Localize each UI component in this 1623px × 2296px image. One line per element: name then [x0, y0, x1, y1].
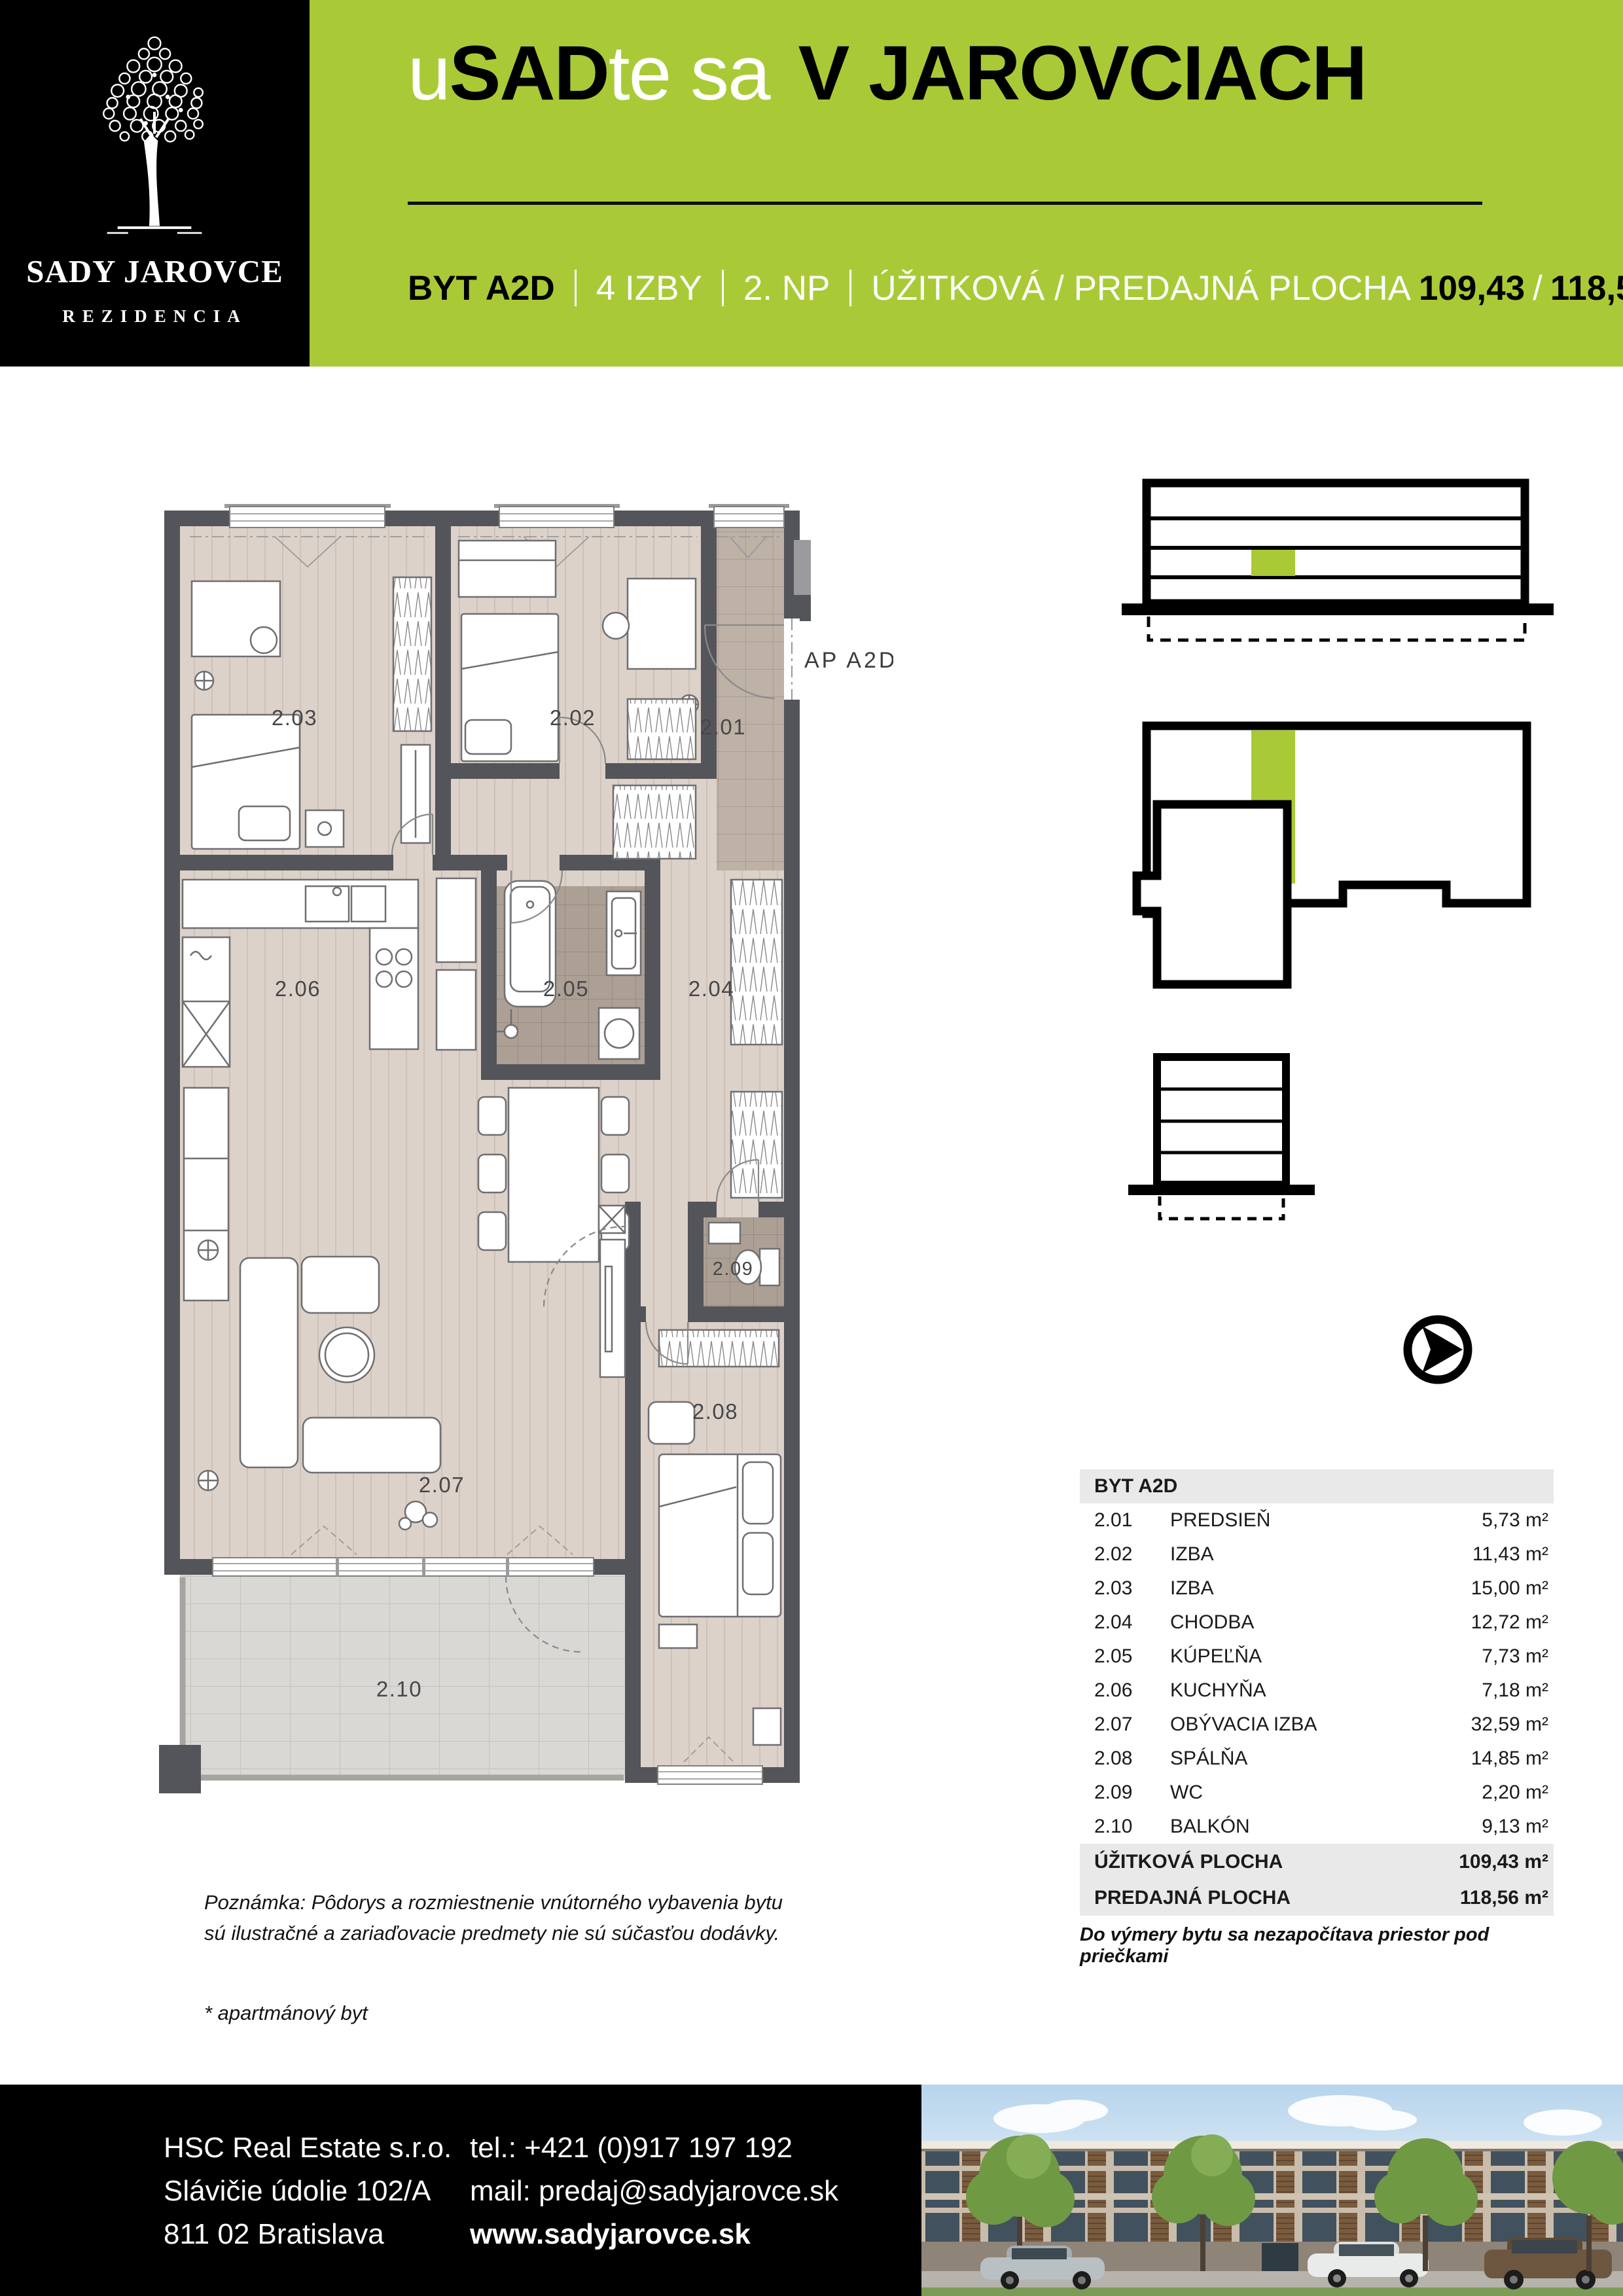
room-label: 2.08	[692, 1399, 738, 1424]
room-code: 2.07	[1094, 1713, 1170, 1736]
title-part: SAD	[450, 30, 609, 117]
tree-logo-icon	[63, 22, 246, 238]
site-elevation-diagram	[1122, 483, 1554, 640]
room-code: 2.02	[1094, 1543, 1170, 1566]
logo-box: SADY JAROVCE REZIDENCIA	[0, 0, 310, 367]
total-label: ÚŽITKOVÁ PLOCHA	[1094, 1851, 1459, 1873]
total-label: PREDAJNÁ PLOCHA	[1094, 1887, 1460, 1909]
room-label: 2.04	[688, 977, 734, 1001]
north-arrow-icon	[1408, 1319, 1468, 1380]
room-code: 2.10	[1094, 1816, 1170, 1838]
room-area: 15,00 m²	[1471, 1577, 1554, 1600]
title-part: te sa	[609, 30, 770, 117]
area-sale: 118,56 m²	[1550, 268, 1623, 308]
room-code: 2.08	[1094, 1748, 1170, 1770]
footer: HSC Real Estate s.r.o. Slávičie údolie 1…	[0, 2085, 1623, 2296]
rooms-count: 4 IZBY	[596, 268, 702, 308]
website-link[interactable]: www.sadyjarovce.sk	[470, 2213, 838, 2256]
table-title: BYT A2D	[1080, 1469, 1554, 1503]
room-label: 2.03	[272, 706, 317, 730]
unit-code: BYT A2D	[408, 268, 555, 308]
room-area: 9,13 m²	[1482, 1816, 1554, 1838]
room-label: 2.02	[550, 706, 596, 730]
phone-link[interactable]: tel.: +421 (0)917 197 192	[470, 2126, 838, 2170]
unit-footprint-diagram	[1137, 804, 1287, 984]
table-title-text: BYT A2D	[1094, 1475, 1177, 1498]
table-row: 2.03IZBA15,00 m²	[1080, 1571, 1554, 1605]
building-photo	[921, 2085, 1623, 2296]
footer-address: HSC Real Estate s.r.o. Slávičie údolie 1…	[164, 2126, 452, 2256]
room-area: 14,85 m²	[1471, 1748, 1554, 1770]
gable-elevation-diagram	[1128, 1057, 1315, 1219]
room-area: 32,59 m²	[1471, 1713, 1554, 1736]
footer-contact: tel.: +421 (0)917 197 192 mail: predaj@s…	[470, 2126, 838, 2256]
apartment-label: AP A2D	[804, 648, 893, 673]
table-row: 2.06KUCHYŇA7,18 m²	[1080, 1674, 1554, 1708]
separator	[849, 270, 851, 306]
table-row: 2.02IZBA11,43 m²	[1080, 1537, 1554, 1571]
room-name: CHODBA	[1170, 1611, 1471, 1634]
exterior-pier	[794, 540, 811, 595]
room-code: 2.06	[1094, 1679, 1170, 1702]
room-area: 12,72 m²	[1471, 1611, 1554, 1634]
room-label: 2.10	[376, 1677, 422, 1701]
header-band: uSADte saV JAROVCIACH BYT A2D 4 IZBY 2. …	[310, 0, 1623, 367]
room-code: 2.01	[1094, 1509, 1170, 1532]
email-link[interactable]: mail: predaj@sadyjarovce.sk	[470, 2170, 838, 2213]
floor-number: 2. NP	[743, 268, 830, 308]
logo-subtitle: REZIDENCIA	[0, 306, 310, 327]
total-row-useful: ÚŽITKOVÁ PLOCHA109,43 m²	[1080, 1844, 1554, 1880]
title-main: V JAROVCIACH	[798, 30, 1366, 117]
area-slash: /	[1533, 268, 1543, 308]
room-code: 2.04	[1094, 1611, 1170, 1634]
table-row: 2.09WC2,20 m²	[1080, 1776, 1554, 1810]
table-row: 2.10BALKÓN9,13 m²	[1080, 1810, 1554, 1844]
room-label: 2.07	[419, 1473, 465, 1497]
room-name: SPÁLŇA	[1170, 1748, 1471, 1770]
table-row: 2.05KÚPEĽŇA7,73 m²	[1080, 1640, 1554, 1674]
room-label: 2.05	[543, 977, 589, 1001]
floor-plan: 2.01 2.02 2.03 2.04 2.05 2.06 2.07 2.08 …	[141, 504, 893, 1813]
room-area: 5,73 m²	[1482, 1509, 1554, 1532]
plan-note-line: Poznámka: Pôdorys a rozmiestnenie vnútor…	[204, 1888, 859, 1918]
room-area: 7,73 m²	[1482, 1645, 1554, 1668]
area-useful: 109,43	[1419, 268, 1525, 308]
separator	[722, 270, 724, 306]
room-label: 2.06	[275, 977, 321, 1001]
plan-note: Poznámka: Pôdorys a rozmiestnenie vnútor…	[204, 1888, 859, 1948]
room-name: WC	[1170, 1782, 1482, 1804]
room-area: 7,18 m²	[1482, 1679, 1554, 1702]
total-row-sale: PREDAJNÁ PLOCHA118,56 m²	[1080, 1880, 1554, 1916]
area-table: BYT A2D 2.01PREDSIEŇ5,73 m² 2.02IZBA11,4…	[1080, 1469, 1554, 1916]
room-code: 2.05	[1094, 1645, 1170, 1668]
room-label: 2.01	[700, 715, 746, 739]
site-diagrams	[1080, 419, 1623, 1440]
flyer-page: SADY JAROVCE REZIDENCIA uSADte saV JAROV…	[0, 0, 1623, 2296]
company-name: HSC Real Estate s.r.o.	[164, 2126, 452, 2170]
table-footnote: Do výmery bytu sa nezapočítava priestor …	[1080, 1924, 1554, 1967]
table-row: 2.07OBÝVACIA IZBA32,59 m²	[1080, 1708, 1554, 1742]
apartment-footnote: * apartmánový byt	[204, 2001, 597, 2025]
title-part: u	[408, 30, 450, 117]
room-area: 11,43 m²	[1472, 1543, 1554, 1566]
company-street: Slávičie údolie 102/A	[164, 2170, 452, 2213]
balcony-corner-post	[159, 1745, 201, 1793]
page-title: uSADte saV JAROVCIACH	[408, 29, 1366, 118]
table-row: 2.04CHODBA12,72 m²	[1080, 1605, 1554, 1640]
room-name: OBÝVACIA IZBA	[1170, 1713, 1471, 1736]
area-label: ÚŽITKOVÁ / PREDAJNÁ PLOCHA	[871, 268, 1411, 308]
room-name: KÚPEĽŇA	[1170, 1645, 1482, 1668]
unit-subtitle: BYT A2D 4 IZBY 2. NP ÚŽITKOVÁ / PREDAJNÁ…	[408, 260, 1623, 315]
total-area: 109,43 m²	[1459, 1851, 1548, 1873]
title-divider	[408, 202, 1482, 205]
logo-name: SADY JAROVCE	[0, 253, 310, 290]
separator	[575, 270, 577, 306]
room-area: 2,20 m²	[1482, 1782, 1554, 1804]
room-code: 2.03	[1094, 1577, 1170, 1600]
table-row: 2.01PREDSIEŇ5,73 m²	[1080, 1503, 1554, 1537]
room-name: IZBA	[1170, 1577, 1471, 1600]
room-name: PREDSIEŇ	[1170, 1509, 1482, 1532]
company-city: 811 02 Bratislava	[164, 2213, 452, 2256]
plan-note-line: sú ilustračné a zariaďovacie predmety ni…	[204, 1918, 859, 1949]
room-name: IZBA	[1170, 1543, 1472, 1566]
room-label: 2.09	[713, 1259, 753, 1280]
room-code: 2.09	[1094, 1782, 1170, 1804]
room-name: BALKÓN	[1170, 1816, 1482, 1838]
table-row: 2.08SPÁLŇA14,85 m²	[1080, 1742, 1554, 1776]
total-area: 118,56 m²	[1460, 1887, 1548, 1909]
room-name: KUCHYŇA	[1170, 1679, 1482, 1702]
